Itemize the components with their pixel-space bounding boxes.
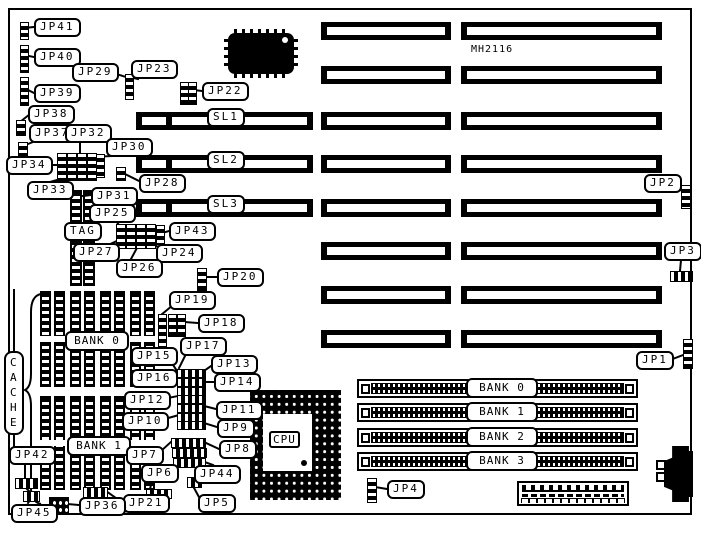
- expansion-slot: [461, 286, 662, 304]
- jumper-block: [197, 268, 207, 291]
- expansion-slot: [321, 155, 451, 173]
- power-pins-row: [522, 485, 624, 492]
- slot-key-divider: [166, 203, 172, 213]
- simm-clip-left: [361, 384, 370, 394]
- jumper-block: [20, 22, 29, 40]
- jumper-block: [20, 77, 29, 106]
- callout-jp28: JP28: [139, 174, 186, 193]
- slot-contact-strip: [467, 247, 656, 255]
- slot-contact-strip: [327, 160, 445, 168]
- callout-jp25: JP25: [89, 204, 136, 223]
- slot-contact-strip: [467, 160, 656, 168]
- slot-contact-strip: [467, 204, 656, 212]
- slot-key-divider: [166, 159, 172, 169]
- pin1-dot: [282, 37, 288, 43]
- expansion-slot: [321, 112, 451, 130]
- plcc-pins-left: [224, 39, 228, 69]
- slot-contact-strip: [467, 335, 656, 343]
- simm-clip-left: [361, 433, 370, 443]
- slot-contact-strip: [467, 117, 656, 125]
- keyboard-connector-pin: [656, 472, 666, 482]
- expansion-slot: [461, 155, 662, 173]
- callout-jp10: JP10: [122, 412, 169, 431]
- callout-jp33: JP33: [27, 181, 74, 200]
- jumper-block: [136, 224, 146, 249]
- expansion-slot: [321, 286, 451, 304]
- expansion-slot: [321, 66, 451, 84]
- power-dash-row: [522, 494, 624, 497]
- cpu-socket: CPU: [250, 390, 341, 500]
- callout-jp15: JP15: [131, 347, 178, 366]
- slot-contact-strip: [467, 291, 656, 299]
- chip-part-number: MH2116: [471, 44, 513, 55]
- callout-jp21: JP21: [123, 494, 170, 513]
- callout-jp16: JP16: [131, 369, 178, 388]
- expansion-slot: [461, 199, 662, 217]
- callout-tag: TAG: [64, 222, 102, 241]
- cpu-die: CPU: [263, 414, 312, 471]
- jumper-block: [146, 224, 156, 249]
- slot-label: SL2: [207, 151, 245, 170]
- plcc-pins-bottom: [234, 74, 290, 78]
- jumper-block: [681, 185, 691, 209]
- power-connector: [517, 481, 629, 506]
- callout-jp1: JP1: [636, 351, 674, 370]
- callout-jp36: JP36: [79, 497, 126, 516]
- jumper-block: [67, 153, 77, 181]
- callout-jp4: JP4: [387, 480, 425, 499]
- callout-jp11: JP11: [216, 401, 263, 420]
- callout-jp45: JP45: [11, 504, 58, 523]
- jumper-block: [177, 395, 206, 404]
- callout-jp8: JP8: [219, 440, 257, 459]
- slot-label: SL1: [207, 108, 245, 127]
- jumper-block: [683, 339, 693, 369]
- slot-contact-strip: [327, 27, 445, 35]
- jumper-block: [156, 225, 165, 245]
- expansion-slot: [461, 22, 662, 40]
- jumper-block: [116, 167, 126, 181]
- callout-jp13: JP13: [211, 355, 258, 374]
- callout-jp32: JP32: [65, 124, 112, 143]
- jumper-block: [188, 82, 197, 105]
- jumper-block: [77, 153, 87, 181]
- jumper-block: [23, 491, 40, 502]
- callout-jp41: JP41: [34, 18, 81, 37]
- slot-contact-strip: [467, 71, 656, 79]
- jumper-block: [171, 438, 206, 448]
- callout-jp2: JP2: [644, 174, 682, 193]
- expansion-slot: [321, 199, 451, 217]
- callout-jp44: JP44: [194, 465, 241, 484]
- simm-clip-left: [361, 457, 370, 467]
- jumper-block: [16, 120, 26, 136]
- simm-clip-right: [625, 384, 634, 394]
- motherboard-diagram: SL1SL2SL3BANK 0BANK 1BANK 2BANK 3BANK 0B…: [0, 0, 701, 533]
- expansion-slot: [461, 242, 662, 260]
- slot-contact-strip: [327, 247, 445, 255]
- plcc-pins-right: [294, 39, 298, 69]
- callout-jp38: JP38: [28, 105, 75, 124]
- jumper-block: [177, 314, 186, 337]
- simm-bank-label: BANK 2: [466, 427, 538, 447]
- callout-jp23: JP23: [131, 60, 178, 79]
- callout-jp20: JP20: [217, 268, 264, 287]
- jumper-block: [96, 154, 105, 178]
- callout-jp22: JP22: [202, 82, 249, 101]
- callout-jp14: JP14: [214, 373, 261, 392]
- callout-jp6: JP6: [141, 464, 179, 483]
- callout-jp9: JP9: [217, 419, 255, 438]
- callout-jp29: JP29: [72, 63, 119, 82]
- plcc-pins-top: [234, 29, 290, 33]
- cpu-pin1-dot: [301, 460, 307, 466]
- expansion-slot: [461, 330, 662, 348]
- callout-jp5: JP5: [198, 494, 236, 513]
- cache-bank-label: BANK 1: [67, 436, 131, 456]
- jumper-block: [57, 153, 67, 181]
- slot-contact-strip: [327, 291, 445, 299]
- callout-jp7: JP7: [126, 446, 164, 465]
- cpu-label: CPU: [269, 431, 300, 448]
- slot-contact-strip: [467, 27, 656, 35]
- callout-jp43: JP43: [169, 222, 216, 241]
- callout-jp19: JP19: [169, 291, 216, 310]
- jumper-block: [20, 45, 29, 73]
- simm-clip-left: [361, 408, 370, 418]
- plcc-chip: [228, 33, 294, 74]
- expansion-slot: [461, 112, 662, 130]
- expansion-slot: [321, 330, 451, 348]
- cache-bank-label: BANK 0: [65, 331, 129, 351]
- callout-jp34: JP34: [6, 156, 53, 175]
- jumper-block: [177, 421, 206, 430]
- callout-jp42: JP42: [9, 446, 56, 465]
- expansion-slot: [321, 22, 451, 40]
- callout-jp26: JP26: [116, 259, 163, 278]
- simm-clip-right: [625, 408, 634, 418]
- callout-jp12: JP12: [124, 391, 171, 410]
- jumper-block: [670, 271, 693, 282]
- jumper-block: [126, 224, 136, 249]
- simm-bank-label: BANK 3: [466, 451, 538, 471]
- jumper-block: [15, 478, 38, 489]
- jumper-block: [177, 378, 206, 387]
- callout-jp3: JP3: [664, 242, 701, 261]
- jumper-block: [172, 448, 207, 458]
- slot-contact-strip: [327, 71, 445, 79]
- jumper-block: [177, 404, 206, 413]
- callout-jp24: JP24: [156, 244, 203, 263]
- jumper-block: [367, 478, 377, 503]
- jumper-block: [177, 369, 206, 378]
- simm-bank-label: BANK 1: [466, 402, 538, 422]
- slot-contact-strip: [327, 335, 445, 343]
- slot-contact-strip: [327, 204, 445, 212]
- callout-jp17: JP17: [180, 337, 227, 356]
- callout-jp30: JP30: [106, 138, 153, 157]
- simm-clip-right: [625, 457, 634, 467]
- cache-label: CACHE: [4, 351, 24, 435]
- simm-bank-label: BANK 0: [466, 378, 538, 398]
- simm-clip-right: [625, 433, 634, 443]
- slot-key-divider: [166, 116, 172, 126]
- expansion-slot: [461, 66, 662, 84]
- expansion-slot: [321, 242, 451, 260]
- keyboard-connector-pin: [656, 460, 666, 470]
- jumper-block: [158, 314, 167, 349]
- callout-jp27: JP27: [73, 243, 120, 262]
- callout-jp18: JP18: [198, 314, 245, 333]
- jumper-block: [168, 314, 177, 337]
- slot-contact-strip: [327, 117, 445, 125]
- callout-jp39: JP39: [34, 84, 81, 103]
- power-socket-row: [521, 498, 625, 503]
- slot-label: SL3: [207, 195, 245, 214]
